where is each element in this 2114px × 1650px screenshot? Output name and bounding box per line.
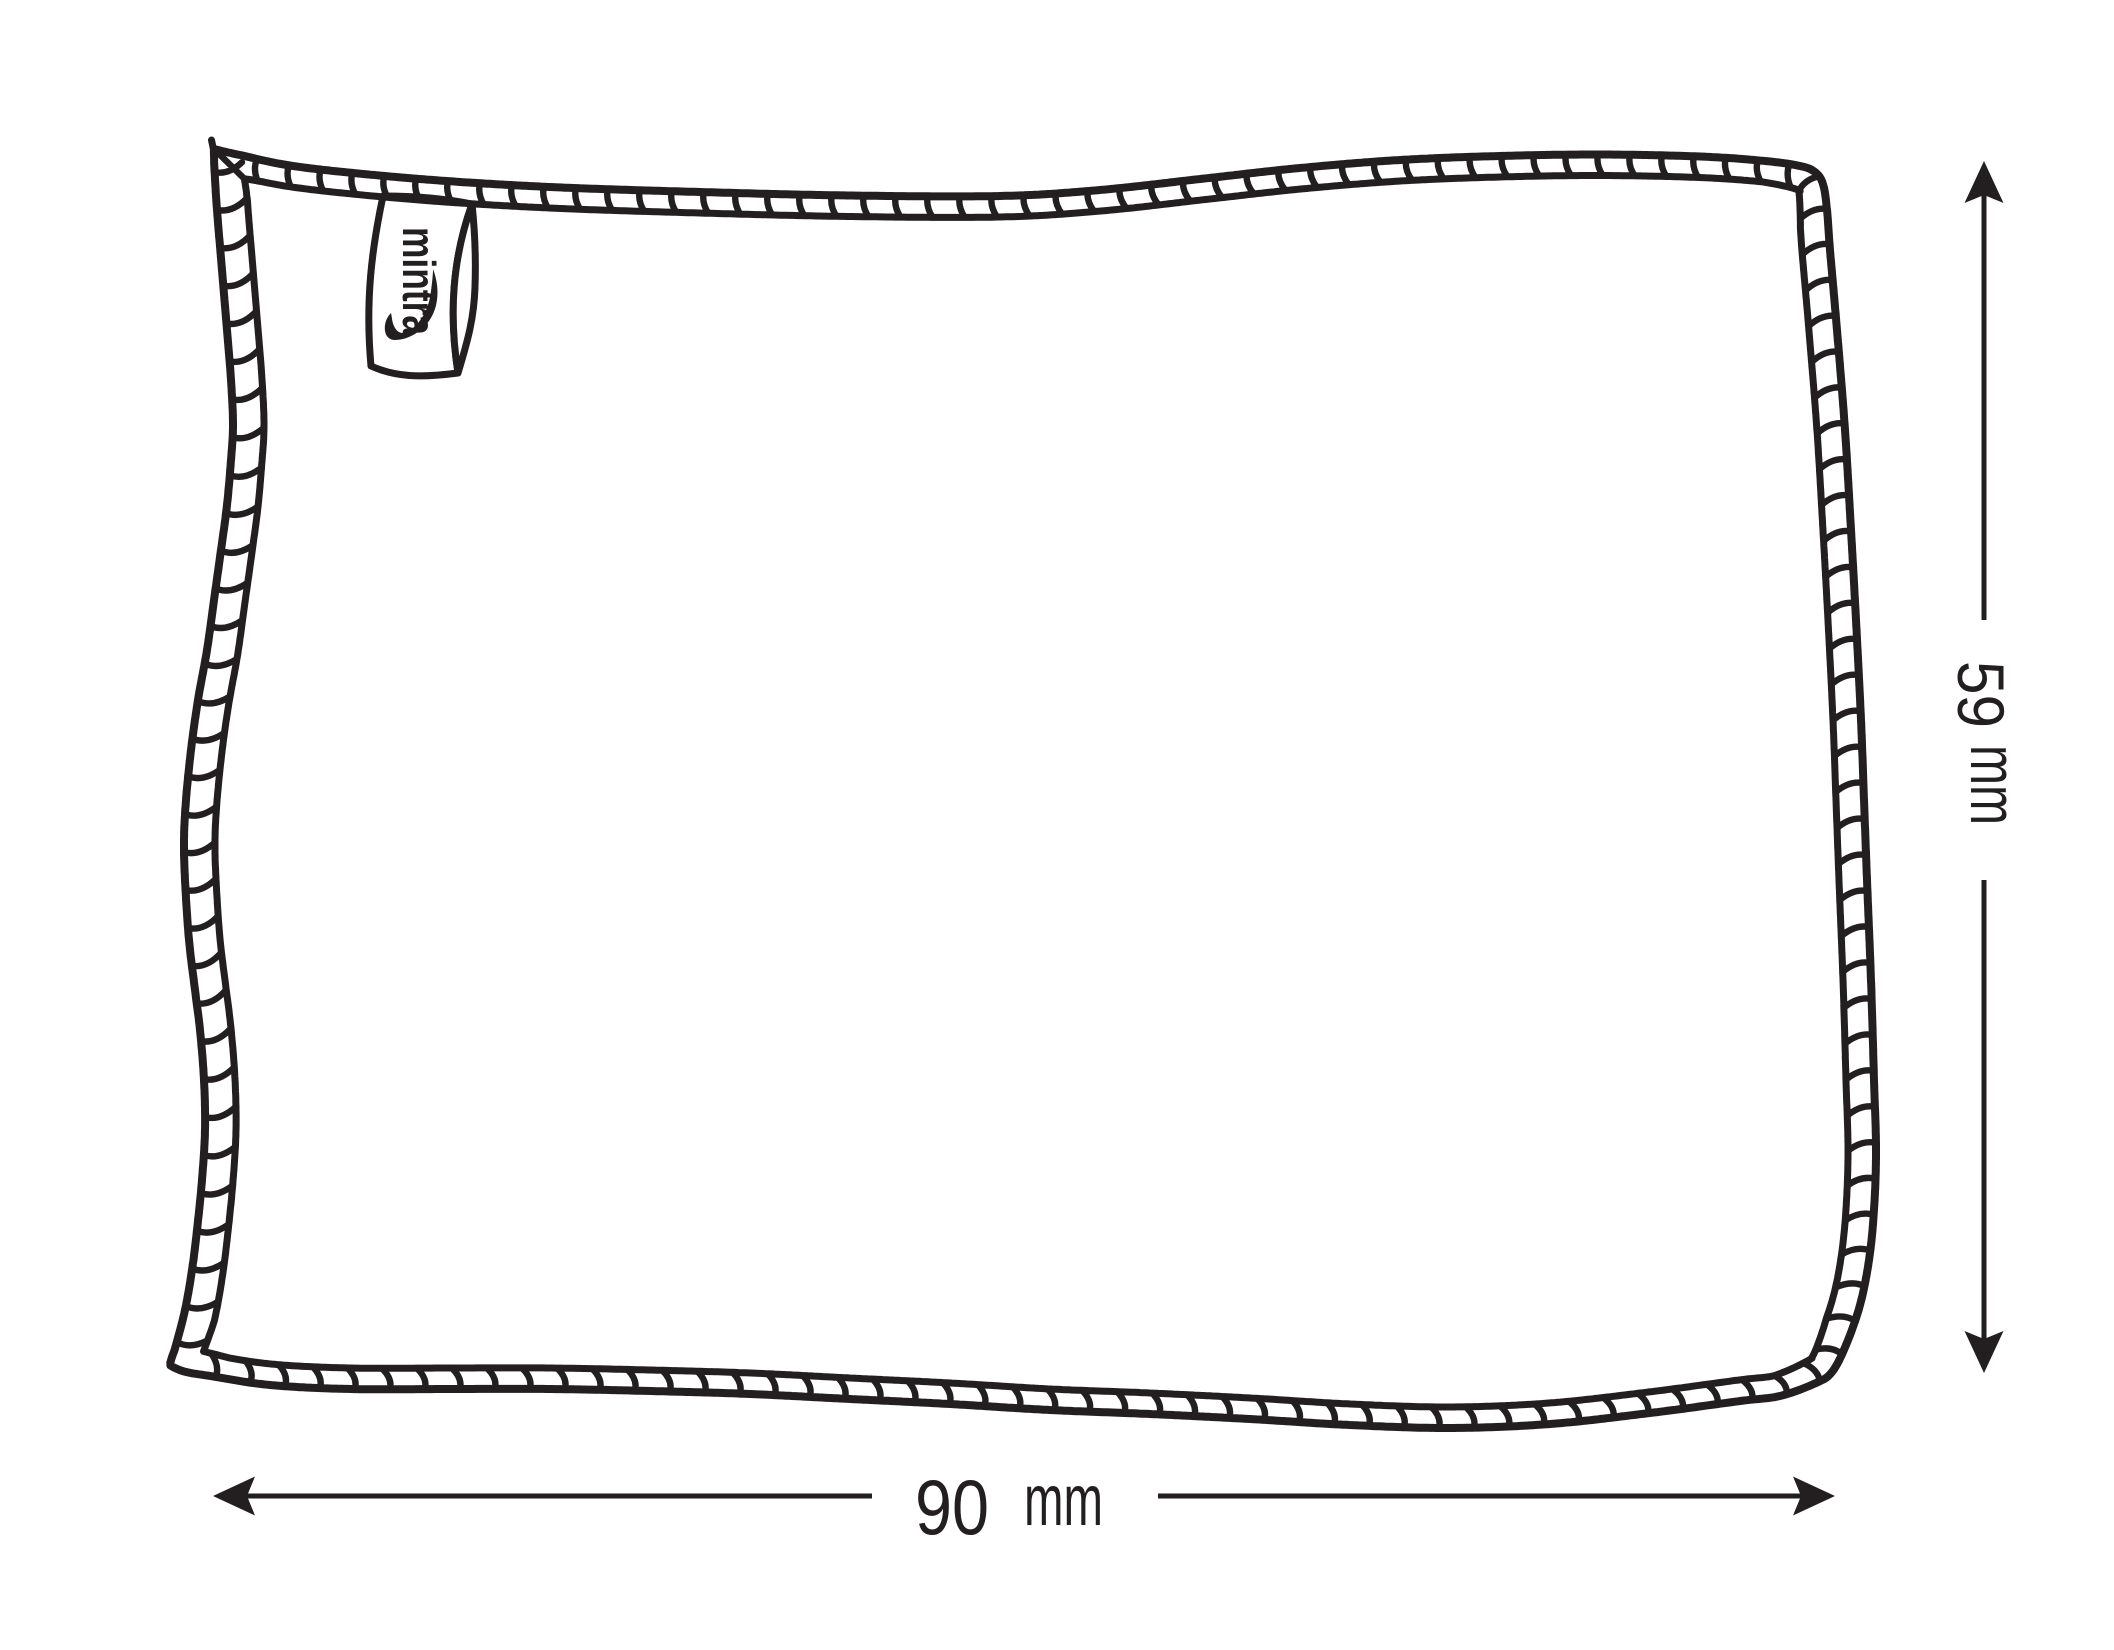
- svg-text:90: 90: [915, 1463, 989, 1551]
- svg-text:mintra: mintra: [393, 227, 445, 335]
- svg-text:59: 59: [1944, 661, 2018, 728]
- svg-text:mm: mm: [1957, 745, 2031, 825]
- svg-text:mm: mm: [1024, 1461, 1103, 1541]
